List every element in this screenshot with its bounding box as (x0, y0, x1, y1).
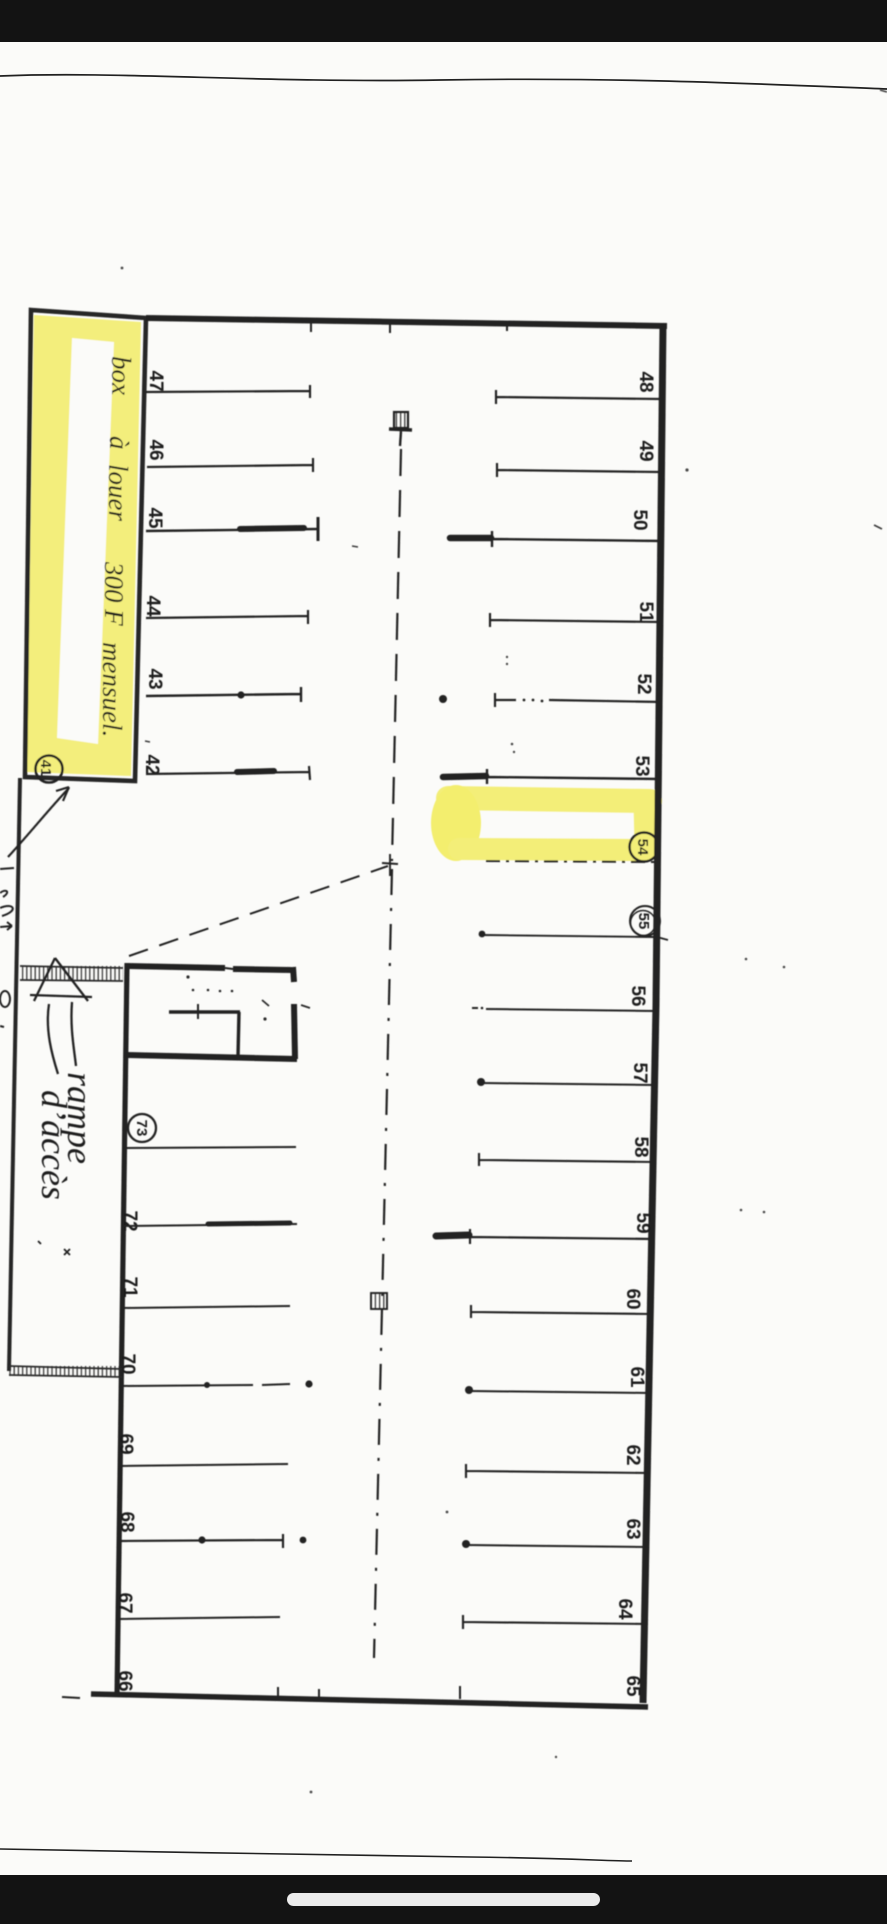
svg-text:46: 46 (145, 439, 166, 460)
svg-text:60: 60 (622, 1288, 643, 1309)
svg-text:49: 49 (635, 440, 656, 461)
svg-text:41: 41 (37, 760, 54, 777)
svg-text:65: 65 (622, 1675, 643, 1697)
svg-text:d’accès: d’accès (34, 1090, 74, 1200)
svg-text:66: 66 (114, 1670, 135, 1691)
svg-text:50: 50 (629, 509, 650, 530)
svg-text:58: 58 (630, 1136, 651, 1157)
svg-text:53: 53 (631, 755, 652, 776)
svg-text:64: 64 (614, 1598, 635, 1620)
svg-text:72: 72 (119, 1210, 140, 1231)
svg-text:box: box (106, 356, 136, 395)
svg-text:62: 62 (622, 1444, 643, 1465)
svg-text:61: 61 (626, 1366, 647, 1388)
svg-text:68: 68 (116, 1511, 137, 1532)
svg-text:56: 56 (627, 985, 648, 1006)
svg-text:à: à (104, 436, 134, 450)
svg-text:57: 57 (629, 1062, 650, 1083)
svg-text:67: 67 (114, 1592, 135, 1613)
svg-text:48: 48 (635, 371, 656, 392)
svg-text:59: 59 (632, 1212, 653, 1233)
svg-text:51: 51 (635, 601, 656, 623)
svg-text:70: 70 (117, 1353, 138, 1374)
svg-text:54: 54 (634, 839, 651, 856)
svg-text:45: 45 (144, 507, 165, 529)
svg-text:42: 42 (141, 754, 162, 775)
svg-text:73: 73 (133, 1120, 150, 1137)
svg-text:69: 69 (115, 1433, 136, 1454)
svg-text:44: 44 (142, 595, 163, 617)
svg-text:55: 55 (635, 913, 652, 930)
svg-text:63: 63 (622, 1518, 643, 1539)
svg-text:71: 71 (119, 1276, 140, 1298)
svg-text:52: 52 (633, 673, 654, 694)
svg-text:47: 47 (145, 370, 166, 391)
svg-text:43: 43 (144, 668, 165, 689)
svg-text:louer: louer (103, 464, 133, 521)
svg-text:mensuel.: mensuel. (97, 642, 127, 737)
svg-text:300 F: 300 F (99, 561, 129, 626)
